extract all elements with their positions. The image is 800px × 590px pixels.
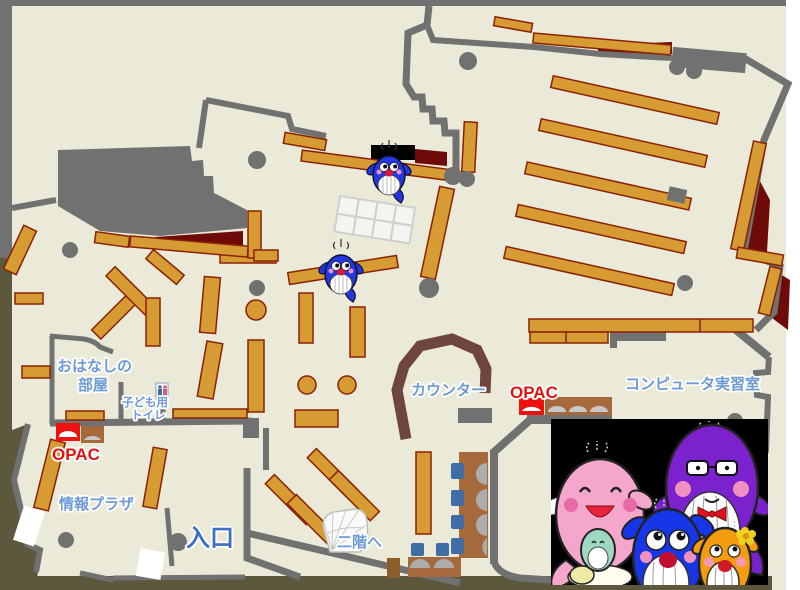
return-desk bbox=[458, 408, 492, 423]
label-info-plaza: 情報プラザ bbox=[59, 495, 134, 513]
bookshelf bbox=[254, 250, 278, 261]
pillar bbox=[669, 59, 685, 75]
mascot-photo bbox=[541, 419, 774, 590]
label-computer-room: コンピュータ実習室 bbox=[625, 375, 760, 393]
chair bbox=[411, 543, 424, 556]
label-storytelling-room-line2: 部屋 bbox=[78, 376, 108, 394]
pillar bbox=[419, 278, 439, 298]
label-kids-toilet-line2: トイレ bbox=[131, 409, 166, 422]
bookshelf bbox=[248, 340, 264, 412]
label-counter: カウンター bbox=[411, 382, 486, 399]
bookshelf bbox=[173, 409, 247, 418]
storage-wedge bbox=[415, 149, 447, 166]
pillar bbox=[249, 280, 265, 296]
label-kids-toilet-line1: 子ども用 bbox=[122, 396, 168, 409]
library-floor-map: おはなしの 部屋 子ども用 トイレ OPAC 情報プラザ 入口 二階へ カウンタ… bbox=[0, 0, 800, 590]
chair bbox=[451, 490, 464, 506]
round-table bbox=[338, 376, 356, 394]
label-opac-center: OPAC bbox=[510, 383, 558, 402]
pillar bbox=[169, 533, 187, 551]
bookshelf bbox=[350, 307, 365, 357]
label-opac-left: OPAC bbox=[52, 445, 100, 464]
pillar bbox=[248, 151, 266, 169]
label-entrance: 入口 bbox=[186, 525, 234, 552]
chair bbox=[451, 515, 464, 529]
bookshelf bbox=[295, 410, 338, 427]
bookshelf bbox=[146, 298, 160, 346]
doorway bbox=[136, 548, 165, 580]
opac-machine bbox=[81, 426, 104, 443]
pillar bbox=[58, 532, 74, 548]
floor-map-canvas: おはなしの 部屋 子ども用 トイレ OPAC 情報プラザ 入口 二階へ カウンタ… bbox=[0, 0, 800, 590]
bookshelf bbox=[530, 332, 608, 343]
bookshelf bbox=[416, 452, 431, 534]
round-table bbox=[298, 376, 316, 394]
bookshelf bbox=[66, 411, 104, 420]
bookshelf bbox=[299, 293, 313, 343]
bookshelf bbox=[462, 122, 478, 173]
bookshelf bbox=[529, 319, 753, 332]
top-wall bbox=[8, 0, 786, 6]
chair bbox=[436, 543, 449, 556]
post bbox=[387, 558, 400, 578]
wall-segment bbox=[243, 418, 259, 438]
pillar bbox=[686, 63, 702, 79]
round-table bbox=[246, 300, 266, 320]
bookshelf bbox=[22, 366, 50, 378]
label-storytelling-room-line1: おはなしの bbox=[57, 358, 132, 375]
left-wall bbox=[0, 0, 12, 258]
pillar bbox=[444, 167, 462, 185]
bookshelf bbox=[15, 293, 43, 304]
chair bbox=[451, 538, 464, 554]
opac-terminals-left bbox=[56, 423, 104, 443]
chair bbox=[451, 463, 464, 479]
pillar bbox=[62, 242, 78, 258]
wall-segment bbox=[610, 341, 617, 348]
opac-machine-screen bbox=[548, 406, 608, 412]
pillar bbox=[677, 275, 693, 291]
label-to-second-floor: 二階へ bbox=[337, 533, 382, 551]
pillar bbox=[459, 171, 475, 187]
pillar bbox=[459, 52, 477, 70]
